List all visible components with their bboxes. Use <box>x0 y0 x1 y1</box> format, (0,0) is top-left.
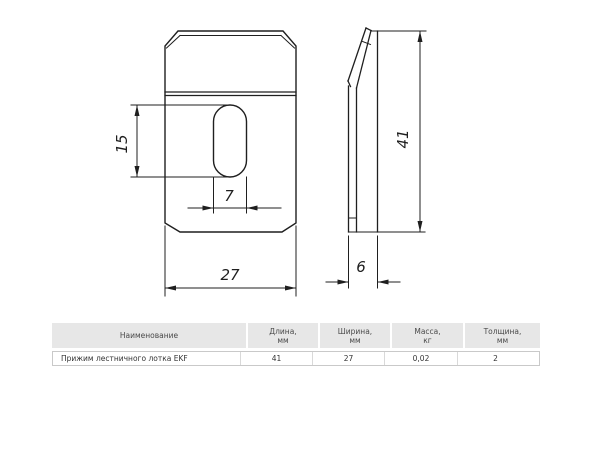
header-cell-thickness: Толщина, мм <box>465 323 540 348</box>
header-cell-mass: Масса, кг <box>392 323 465 348</box>
header-thickness-line1: Толщина, <box>484 327 522 336</box>
row-cell-thickness: 2 <box>458 352 533 365</box>
header-cell-width: Ширина, мм <box>320 323 392 348</box>
dimension-slot-height <box>131 105 232 177</box>
header-width-line2: мм <box>349 336 360 345</box>
spec-table: Наименование Длина, мм Ширина, мм Масса,… <box>52 323 540 366</box>
table-row: Прижим лестничного лотка EKF 41 27 0,02 … <box>52 351 540 366</box>
row-cell-length: 41 <box>241 352 313 365</box>
dim-label-depth: 6 <box>356 258 366 276</box>
header-name-line1: Наименование <box>120 331 178 340</box>
header-mass-line1: Масса, <box>414 327 440 336</box>
row-cell-name: Прижим лестничного лотка EKF <box>53 352 241 365</box>
spec-table-header: Наименование Длина, мм Ширина, мм Масса,… <box>52 323 540 348</box>
dim-label-width: 27 <box>220 266 240 284</box>
header-cell-name: Наименование <box>52 323 248 348</box>
row-cell-width: 27 <box>313 352 385 365</box>
technical-drawing-page: 15 7 27 41 6 Наименование Длина, мм Шири… <box>0 0 600 450</box>
dim-label-slot-width: 7 <box>224 187 234 205</box>
dim-label-height: 41 <box>394 129 412 148</box>
header-length-line1: Длина, <box>269 327 296 336</box>
header-length-line2: мм <box>277 336 288 345</box>
row-cell-mass: 0,02 <box>385 352 458 365</box>
header-thickness-line2: мм <box>497 336 508 345</box>
dimension-overall-width <box>165 226 296 296</box>
dim-label-slot-height: 15 <box>113 134 131 153</box>
technical-drawing: 15 7 27 41 6 <box>0 0 600 315</box>
header-width-line1: Ширина, <box>338 327 372 336</box>
side-view <box>348 28 425 232</box>
slot-outline <box>214 105 247 177</box>
dimension-slot-width <box>188 177 281 213</box>
header-mass-line2: кг <box>423 336 431 345</box>
header-cell-length: Длина, мм <box>248 323 320 348</box>
